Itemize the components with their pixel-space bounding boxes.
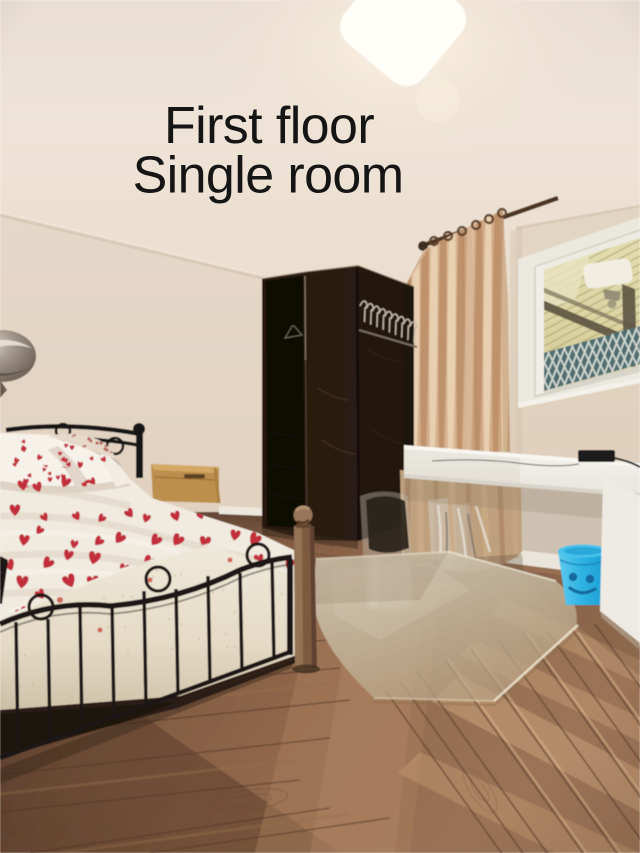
svg-text:Single room: Single room: [133, 147, 404, 205]
